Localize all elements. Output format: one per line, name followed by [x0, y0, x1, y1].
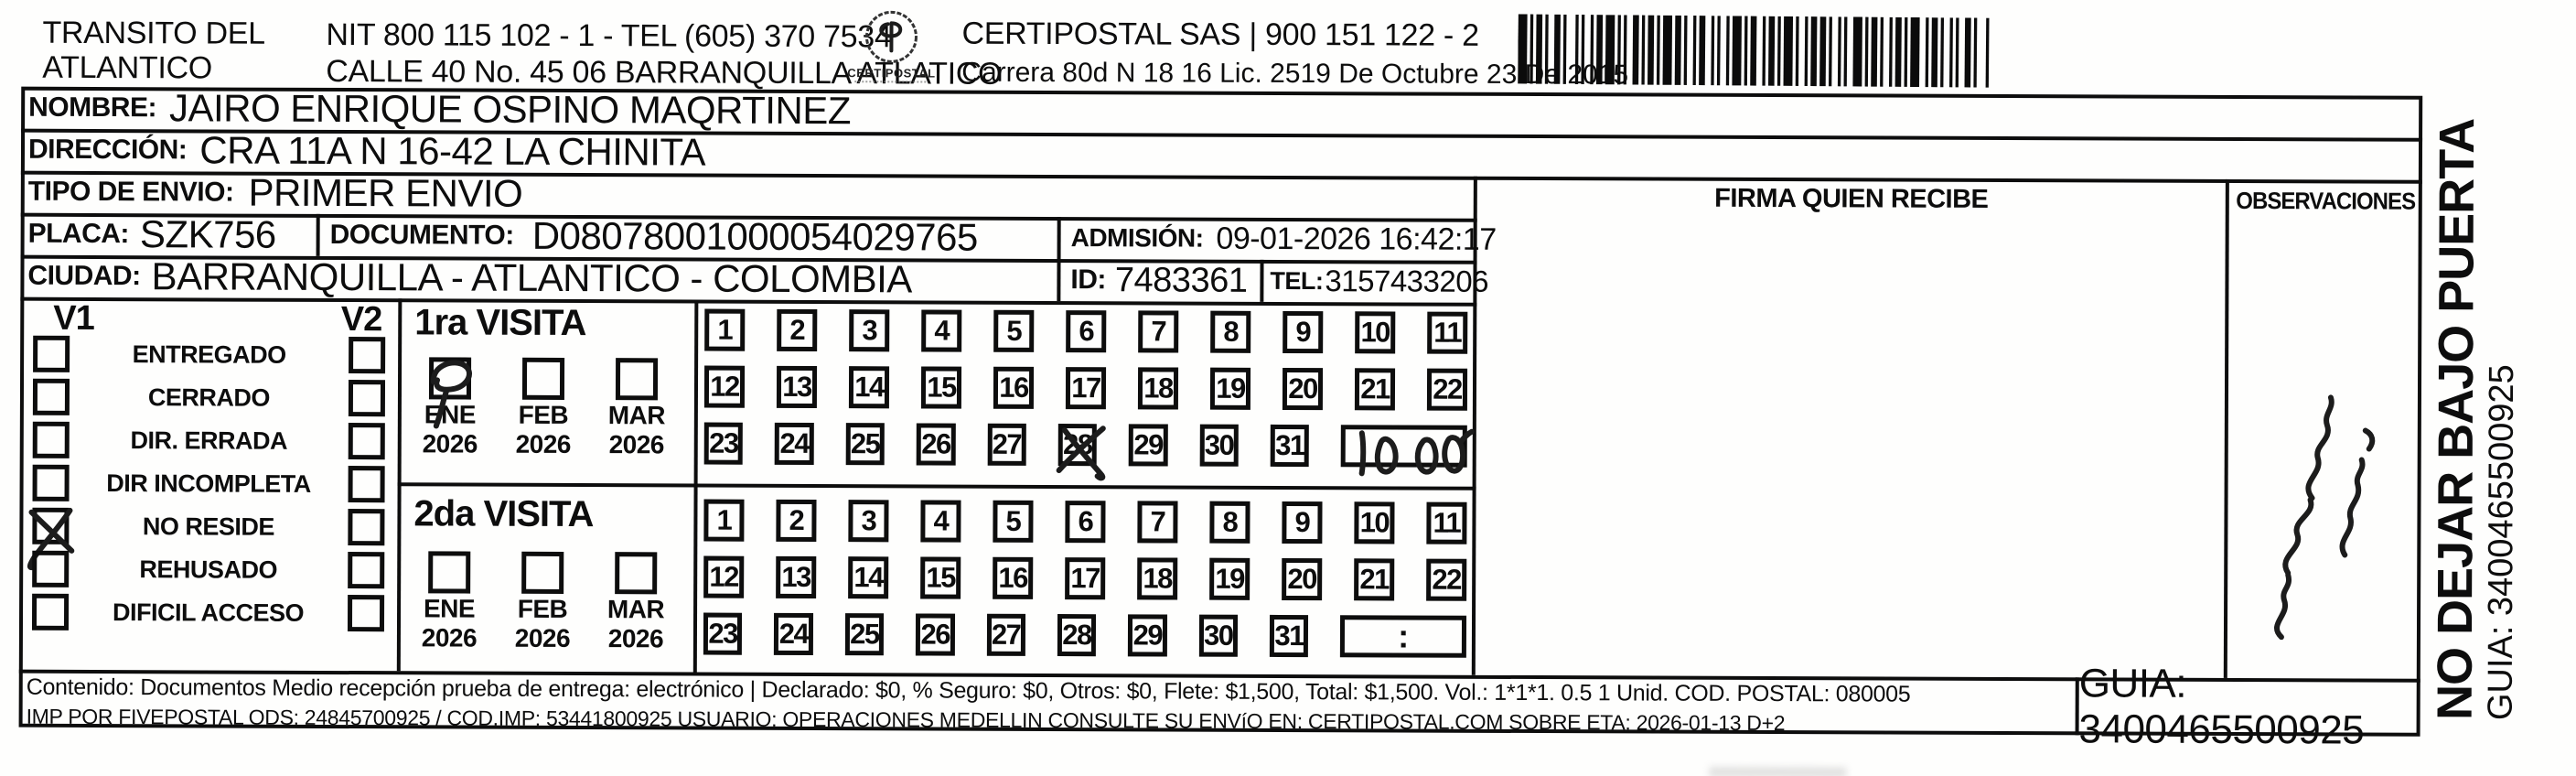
day-cell-4: 4: [920, 500, 961, 542]
month-ene: ENE2026: [410, 551, 488, 652]
day-cell-22: 22: [1427, 369, 1467, 411]
divider: [1260, 260, 1263, 302]
direccion-value: CRA 11A N 16-42 LA CHINITA: [199, 128, 705, 174]
month-year: 2026: [609, 431, 664, 458]
time-colon-placeholder: :: [1398, 617, 1409, 655]
day-cell-2: 2: [777, 309, 817, 351]
handwritten-day-mark: [1053, 423, 1111, 481]
day-cell-8: 8: [1210, 311, 1250, 353]
nombre-row: NOMBRE: JAIRO ENRIQUE OSPINO MAQRTINEZ: [28, 87, 851, 132]
scan-smudge: [1709, 767, 1846, 776]
day-cell-3: 3: [848, 500, 888, 542]
first-visit-title: 1ra VISITA: [414, 302, 585, 344]
day-cell-5: 5: [993, 501, 1033, 543]
day-cell-15: 15: [921, 366, 961, 408]
month-label: MAR: [607, 596, 664, 623]
nombre-label: NOMBRE:: [28, 92, 156, 124]
delivery-status-panel: V1 V2 ENTREGADOCERRADODIR. ERRADADIR INC…: [19, 297, 399, 672]
day-cell-13: 13: [776, 556, 816, 598]
month-ene: ENE2026: [411, 357, 489, 458]
day-cell-8: 8: [1209, 501, 1250, 544]
day-cell-19: 19: [1209, 558, 1250, 600]
day-cell-3: 3: [849, 309, 889, 351]
day-cell-5: 5: [993, 310, 1034, 352]
scanned-postal-form: TRANSITO DEL ATLANTICO NIT 800 115 102 -…: [0, 0, 2576, 776]
month-checkbox-feb: [521, 552, 563, 594]
day-cell-2: 2: [776, 500, 816, 542]
second-visit-time-box: :: [1340, 615, 1466, 658]
v2-checkbox-dir-incompleta: [349, 466, 385, 502]
day-cell-29: 29: [1128, 614, 1167, 656]
divider: [317, 214, 320, 256]
company-line1: TRANSITO DEL: [42, 16, 264, 51]
status-option-label: DIFICIL ACCESO: [69, 598, 348, 627]
divider: [1057, 217, 1060, 301]
logo-caption: CERTIPOSTAL: [847, 66, 934, 80]
placa-label: PLACA:: [28, 219, 129, 250]
day-cell-12: 12: [703, 556, 744, 598]
day-cell-25: 25: [845, 423, 885, 465]
ciudad-value: BARRANQUILLA - ATLANTICO - COLOMBIA: [152, 254, 912, 301]
first-visit-time-box: [1341, 425, 1467, 468]
day-cell-17: 17: [1066, 367, 1106, 409]
day-cell-11: 11: [1426, 502, 1466, 544]
day-cell-30: 30: [1199, 425, 1239, 467]
second-visit-panel: 2da VISITA ENE2026FEB2026MAR2026: [401, 486, 694, 672]
day-cell-27: 27: [987, 424, 1026, 466]
side-warning-text: NO DEJAR BAJO PUERTA: [2430, 105, 2484, 720]
guia-number: GUIA: 3400465500925: [2078, 661, 2420, 753]
day-cell-10: 10: [1354, 501, 1394, 544]
tipo-envio-value: PRIMER ENVIO: [248, 171, 522, 216]
day-cell-14: 14: [848, 556, 888, 598]
month-year: 2026: [515, 625, 570, 652]
status-option-row: DIFICIL ACCESO: [32, 594, 384, 631]
status-option-row: CERRADO: [33, 379, 385, 416]
day-cell-27: 27: [986, 614, 1025, 656]
month-label: FEB: [518, 596, 568, 623]
firma-header-cell: FIRMA QUIEN RECIBE: [1477, 177, 2226, 221]
v2-checkbox-cerrado: [349, 380, 385, 416]
day-cell-20: 20: [1283, 368, 1323, 410]
handwritten-time-note: [1340, 420, 1487, 485]
v1-checkbox-no-reside: [32, 508, 69, 544]
v1-checkbox-entregado: [33, 336, 70, 372]
tel-label: TEL:: [1270, 266, 1323, 295]
day-cell-25: 25: [845, 613, 885, 655]
id-cell: ID: 7483361: [1070, 259, 1247, 302]
footer-content-cell: Contenido: Documentos Medio recepción pr…: [27, 674, 2066, 738]
month-checkbox-feb: [522, 358, 564, 400]
status-option-label: CERRADO: [70, 383, 349, 412]
status-option-label: NO RESIDE: [69, 512, 348, 541]
month-label: MAR: [608, 402, 665, 429]
day-cell-16: 16: [993, 557, 1033, 599]
month-year: 2026: [516, 431, 571, 458]
first-visit-day-grid: 1234567891011121314151617181920212223242…: [704, 309, 1468, 482]
admision-label: ADMISIÓN:: [1071, 223, 1204, 253]
day-cell-10: 10: [1355, 311, 1395, 353]
direccion-label: DIRECCIÓN:: [28, 135, 187, 167]
certipostal-logo-icon: [858, 9, 924, 66]
month-year: 2026: [422, 624, 477, 652]
tipo-envio-label: TIPO DE ENVIO:: [28, 177, 234, 209]
first-visit-panel: 1ra VISITA ENE2026FEB2026MAR2026: [402, 298, 695, 485]
day-cell-9: 9: [1282, 501, 1322, 544]
month-feb: FEB2026: [503, 552, 582, 652]
status-option-label: DIR INCOMPLETA: [70, 469, 349, 498]
day-cell-31: 31: [1270, 615, 1309, 657]
month-label: FEB: [519, 402, 569, 429]
month-label: ENE: [424, 401, 476, 428]
second-visit-day-grid: 1234567891011121314151617181920212223242…: [703, 500, 1467, 673]
day-cell-19: 19: [1210, 368, 1250, 410]
month-year: 2026: [423, 430, 478, 458]
status-option-row: DIR INCOMPLETA: [33, 465, 385, 502]
v1-column-header: V1: [53, 299, 94, 339]
side-margin: NO DEJAR BAJO PUERTA GUIA: 3400465500925: [2420, 5, 2576, 776]
month-feb: FEB2026: [504, 358, 583, 458]
v2-checkbox-dir-errada: [349, 423, 385, 459]
tel-value: 3157433206: [1325, 264, 1488, 299]
day-cell-24: 24: [774, 613, 813, 655]
certipostal-logo: CERTIPOSTAL: [847, 9, 934, 88]
direccion-row: DIRECCIÓN: CRA 11A N 16-42 LA CHINITA: [28, 129, 705, 174]
id-value: 7483361: [1115, 261, 1248, 301]
v2-checkbox-dificil-acceso: [348, 595, 384, 631]
month-checkbox-ene: [429, 357, 471, 399]
day-cell-26: 26: [917, 423, 956, 465]
day-cell-21: 21: [1354, 558, 1394, 600]
day-cell-29: 29: [1129, 424, 1168, 466]
day-cell-6: 6: [1065, 501, 1105, 543]
nombre-value: JAIRO ENRIQUE OSPINO MAQRTINEZ: [169, 86, 851, 133]
ciudad-label: CIUDAD:: [27, 261, 140, 292]
day-cell-18: 18: [1138, 367, 1178, 409]
second-visit-title: 2da VISITA: [413, 493, 593, 535]
day-cell-20: 20: [1282, 558, 1322, 600]
tracking-barcode: [1518, 14, 2163, 91]
day-cell-12: 12: [704, 366, 745, 408]
v1-checkbox-rehusado: [32, 551, 69, 587]
v2-checkbox-rehusado: [348, 552, 384, 588]
documento-label: DOCUMENTO:: [330, 220, 514, 252]
day-cell-9: 9: [1283, 311, 1323, 353]
tel-cell: TEL: 3157433206: [1270, 260, 1488, 303]
month-mar: MAR2026: [596, 552, 675, 652]
guia-box: GUIA: 3400465500925: [2079, 677, 2420, 736]
v2-checkbox-no-reside: [348, 509, 384, 545]
tipo-envio-row: TIPO DE ENVIO: PRIMER ENVIO: [28, 171, 523, 215]
month-checkbox-mar: [616, 358, 658, 400]
status-option-row: REHUSADO: [32, 551, 384, 588]
month-checkbox-mar: [615, 552, 657, 594]
day-cell-1: 1: [704, 309, 745, 351]
month-year: 2026: [608, 625, 663, 652]
side-guia-text: GUIA: 3400465500925: [2481, 105, 2524, 720]
logo-tagline-decoration: [854, 81, 926, 88]
day-cell-24: 24: [775, 423, 814, 465]
firma-signature-area: [1476, 219, 2226, 678]
day-cell-23: 23: [703, 613, 743, 655]
day-cell-13: 13: [777, 366, 817, 408]
documento-cell: DOCUMENTO: D08078001000054029765: [330, 214, 978, 259]
placa-value: SZK756: [140, 212, 276, 257]
day-cell-15: 15: [920, 556, 961, 598]
month-checkbox-ene: [428, 551, 470, 593]
placa-cell: PLACA: SZK756: [28, 213, 276, 256]
v1-checkbox-cerrado: [33, 379, 70, 415]
firma-header: FIRMA QUIEN RECIBE: [1714, 183, 1988, 214]
day-cell-31: 31: [1271, 425, 1310, 467]
ciudad-cell: CIUDAD: BARRANQUILLA - ATLANTICO - COLOM…: [27, 255, 912, 301]
day-cell-6: 6: [1066, 310, 1106, 352]
documento-value: D08078001000054029765: [532, 214, 978, 260]
status-option-label: REHUSADO: [69, 555, 348, 584]
sender-company-name: TRANSITO DEL ATLANTICO: [42, 16, 265, 86]
status-option-label: ENTREGADO: [70, 339, 349, 369]
v2-checkbox-entregado: [349, 337, 385, 373]
footer-line2: IMP POR FIVEPOSTAL ODS: 24845700925 / CO…: [27, 705, 2066, 738]
day-cell-1: 1: [703, 500, 744, 542]
day-cell-28: 28: [1057, 614, 1097, 656]
day-cell-17: 17: [1065, 557, 1105, 599]
day-cell-28: 28: [1058, 424, 1098, 466]
day-cell-16: 16: [993, 367, 1034, 409]
day-cell-7: 7: [1138, 310, 1178, 352]
v1-checkbox-dificil-acceso: [32, 594, 69, 630]
v2-column-header: V2: [341, 300, 382, 339]
day-cell-14: 14: [849, 366, 889, 408]
day-cell-23: 23: [704, 423, 744, 465]
day-cell-4: 4: [921, 309, 961, 351]
admision-cell: ADMISIÓN: 09-01-2026 16:42:17: [1071, 217, 1497, 261]
month-label: ENE: [424, 595, 475, 622]
v1-checkbox-dir-incompleta: [33, 465, 70, 501]
day-cell-11: 11: [1427, 312, 1467, 354]
id-label: ID:: [1070, 264, 1106, 296]
day-cell-26: 26: [916, 613, 955, 655]
day-cell-18: 18: [1137, 557, 1177, 599]
status-option-row: DIR. ERRADA: [33, 422, 385, 459]
day-cell-22: 22: [1426, 559, 1466, 601]
day-cell-7: 7: [1137, 501, 1177, 543]
day-cell-21: 21: [1355, 368, 1395, 410]
observaciones-header-cell: OBSERVACIONES: [2229, 179, 2422, 222]
month-mar: MAR2026: [597, 358, 676, 458]
status-option-row: NO RESIDE: [32, 508, 384, 545]
company-line2: ATLANTICO: [42, 50, 264, 86]
v1-checkbox-dir-errada: [33, 422, 70, 458]
status-option-row: ENTREGADO: [33, 336, 385, 373]
observaciones-header: OBSERVACIONES: [2236, 186, 2415, 215]
day-cell-30: 30: [1198, 615, 1238, 657]
admision-value: 09-01-2026 16:42:17: [1216, 221, 1496, 257]
status-option-label: DIR. ERRADA: [70, 426, 349, 455]
